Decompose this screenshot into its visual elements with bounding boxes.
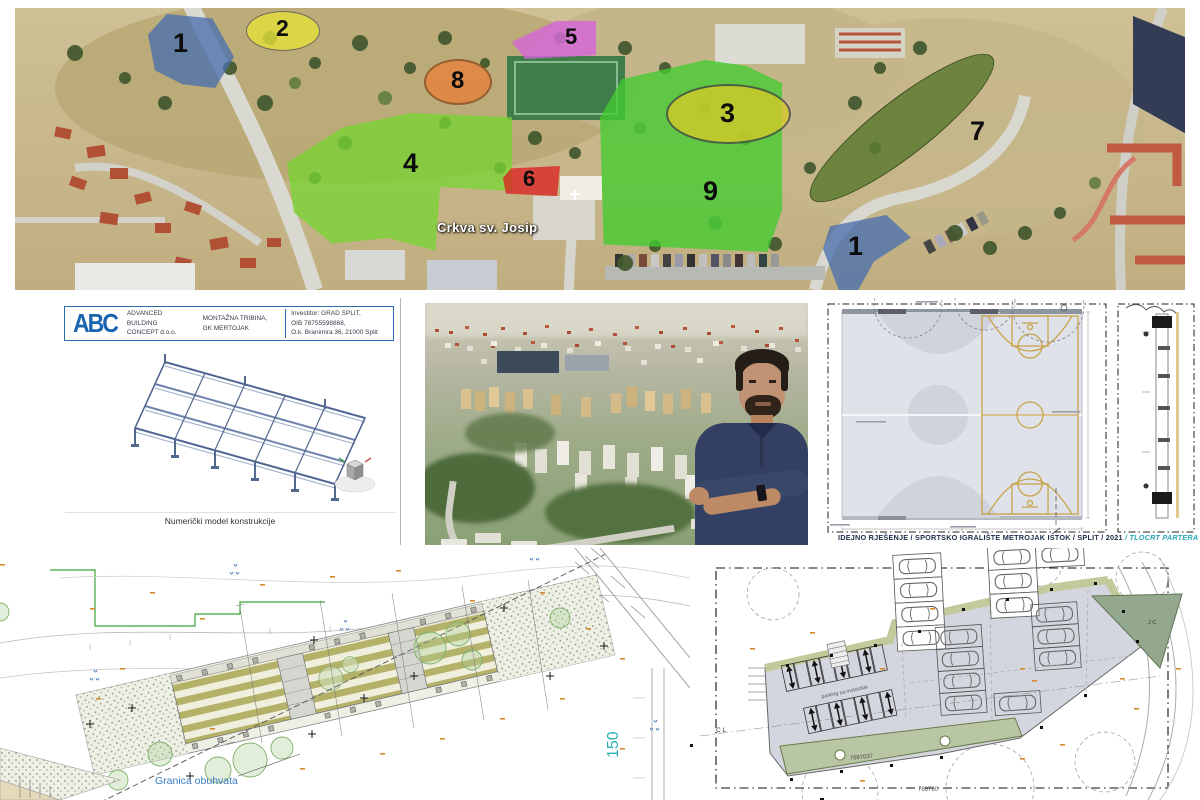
zone-1b-label: 1: [848, 233, 863, 260]
road-curve: [438, 481, 576, 545]
person-sideburn-left: [736, 367, 743, 391]
church-map-label: Crkva sv. Josip: [437, 220, 537, 235]
zone-5-label: 5: [565, 26, 577, 48]
parking-plan-drawing: parking za motocikle: [690, 548, 1200, 800]
zone-1a: [148, 14, 234, 88]
courts-plan: [820, 298, 1200, 545]
title-block: ABC ADVANCED BUILDING CONCEPT d.o.o. MON…: [64, 306, 394, 341]
courts-plan-caption: IDEJNO RJEŠENJE / SPORTSKO IGRALIŠTE MET…: [838, 533, 1190, 542]
low-houses: [441, 539, 467, 545]
zone-9-label: 9: [703, 178, 718, 205]
company-name: ADVANCED BUILDING CONCEPT d.o.o.: [127, 309, 203, 337]
zone-1b: [823, 215, 911, 290]
zone-1a-label: 1: [173, 30, 188, 57]
numerical-model-drawing: [95, 342, 395, 510]
person-mouth: [755, 402, 771, 406]
caption-mid: / SPLIT / 2021: [1071, 533, 1125, 542]
zone-7-label: 7: [970, 118, 985, 145]
site-plan: Granica obuhvata 150: [0, 548, 690, 800]
courts-plan-drawing: [820, 298, 1200, 545]
axis-label-left: C L: [716, 727, 727, 734]
person-placket: [760, 437, 763, 467]
distant-roofs: [435, 329, 439, 332]
caption-title: IDEJNO RJEŠENJE / SPORTSKO IGRALIŠTE MET…: [838, 533, 1071, 542]
zone-3-label: 3: [720, 100, 735, 127]
zone-5: [512, 21, 596, 59]
abc-logo: ABC: [73, 308, 117, 338]
project-name: MONTAŽNA TRIBINA, GK MERTOJAK: [203, 314, 286, 333]
city-photo: [425, 303, 808, 545]
investor-info: Investitor: GRAD SPLIT, OIB 78755598868,…: [285, 309, 393, 337]
satellite-map: 1 2 5 8 4 6 9 3 7: [15, 8, 1185, 290]
person-sideburn-right: [781, 367, 788, 391]
parking-plan: parking za motocikle: [690, 548, 1200, 800]
caption-accent: / TLOCRT PARTERA /: [1125, 533, 1200, 542]
scale-label: 150: [605, 731, 622, 758]
zone-8-label: 8: [451, 69, 464, 93]
collage: 1 2 5 8 4 6 9 3 7: [0, 0, 1200, 800]
person-eye-left: [749, 380, 756, 383]
slab-building: [497, 351, 559, 373]
distant-buildings: [445, 343, 451, 348]
model-caption: Numerički model konstrukcije: [40, 516, 400, 526]
zone-2-label: 2: [276, 17, 289, 40]
boundary-label: Granica obuhvata: [155, 775, 238, 787]
zone-4-label: 4: [403, 150, 418, 177]
person: [687, 347, 808, 545]
person-eye-right: [769, 380, 776, 383]
tree-mass-3: [465, 413, 555, 453]
tower-cluster: [461, 389, 471, 409]
parcel-label-2: 769780: [918, 787, 939, 793]
slab-building-2: [565, 355, 609, 371]
zone-6-label: 6: [523, 168, 535, 190]
axis-label-right: J C: [1148, 620, 1156, 626]
person-hand: [689, 487, 709, 505]
structural-report-page: ABC ADVANCED BUILDING CONCEPT d.o.o. MON…: [40, 298, 401, 545]
site-plan-drawing: Granica obuhvata 150: [0, 548, 690, 800]
axis-cube-icon: [335, 458, 375, 492]
